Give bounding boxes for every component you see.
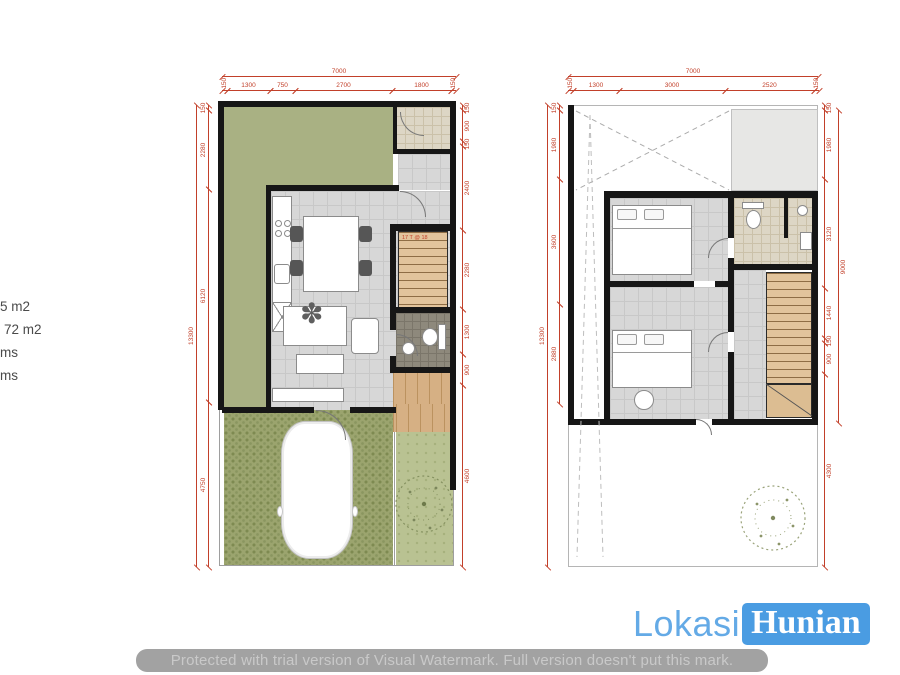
stove-burner xyxy=(275,220,282,227)
wall xyxy=(450,101,456,490)
dining-chair xyxy=(290,260,303,276)
dim-floor1-top-total: 7000 xyxy=(222,76,456,77)
dim-segment: 1980 xyxy=(824,110,825,179)
logo-badge-hunian: Hunian xyxy=(742,603,870,645)
dim-segment: 1300 xyxy=(462,309,463,354)
fence-line xyxy=(219,410,220,566)
dim-segment: 150 xyxy=(451,90,456,91)
floor-plan-image: 5 m2 72 m2 ms ms ✽ 17 T @ 18 xyxy=(0,0,900,675)
wall xyxy=(218,101,224,410)
dim-segment: 4600 xyxy=(462,385,463,567)
tv-console xyxy=(272,388,344,402)
dim-segment: 750 xyxy=(270,90,295,91)
floor1-stairs xyxy=(398,231,448,311)
dim-segment: 2400 xyxy=(462,146,463,230)
info-line-building-area: 72 m2 xyxy=(0,318,42,341)
tree-icon xyxy=(390,458,458,550)
dining-chair xyxy=(290,226,303,242)
dim-segment: 1800 xyxy=(392,90,451,91)
dim-segment: 4300 xyxy=(824,374,825,567)
wall xyxy=(390,231,396,330)
wall xyxy=(266,185,271,412)
wall xyxy=(390,224,450,231)
dim-floor2-left-total: 13300 xyxy=(547,105,548,567)
wall xyxy=(218,101,456,107)
dining-chair xyxy=(359,226,372,242)
fence-line xyxy=(394,432,395,565)
dim-segment: 4750 xyxy=(208,402,209,567)
kitchen-sink xyxy=(274,264,290,284)
dim-segment: 3000 xyxy=(619,90,725,91)
info-line-bedrooms: ms xyxy=(0,341,42,364)
dim-floor2-top-total: 7000 xyxy=(568,76,818,77)
wall xyxy=(396,307,456,313)
info-line-bathrooms: ms xyxy=(0,364,42,387)
wall xyxy=(390,367,456,373)
wall xyxy=(266,185,399,191)
toilet-bowl xyxy=(422,328,438,346)
dim-segment: 150 xyxy=(814,90,819,91)
floor1-side-garden xyxy=(224,107,266,410)
wall xyxy=(393,149,456,154)
car-mirror xyxy=(277,506,283,517)
stove-burner xyxy=(275,230,282,237)
floor1-foyer xyxy=(398,154,450,190)
car-mirror xyxy=(352,506,358,517)
wall xyxy=(222,407,314,413)
dim-segment: 3120 xyxy=(824,179,825,288)
coffee-table xyxy=(296,354,344,374)
dim-segment: 1300 xyxy=(573,90,619,91)
dim-segment: 2880 xyxy=(559,304,560,404)
lokasihunian-logo: Lokasi Hunian xyxy=(633,603,870,645)
wall xyxy=(350,407,396,413)
info-line-land-area: 5 m2 xyxy=(0,295,42,318)
dim-segment: 3600 xyxy=(559,179,560,304)
dim-segment: 1980 xyxy=(559,110,560,179)
dining-chair xyxy=(359,260,372,276)
toilet-tank xyxy=(438,324,446,350)
wall xyxy=(393,107,397,153)
dim-segment: 900 xyxy=(462,110,463,141)
dim-segment: 900 xyxy=(462,354,463,385)
fence-line xyxy=(453,490,454,566)
dim-segment: 6120 xyxy=(208,189,209,402)
fence-line xyxy=(219,565,454,566)
trial-watermark-bar: Protected with trial version of Visual W… xyxy=(136,649,768,672)
dim-segment: 2520 xyxy=(725,90,814,91)
plant-icon: ✽ xyxy=(300,300,323,328)
dim-floor2-right-total: 9000 xyxy=(838,110,839,423)
car xyxy=(281,421,353,559)
dim-segment: 2280 xyxy=(462,230,463,309)
stair-annotation: 17 T @ 18 xyxy=(402,235,428,241)
dining-table xyxy=(303,216,359,292)
floor1-deck-strip xyxy=(396,404,453,432)
dim-segment: 1440 xyxy=(824,288,825,338)
dim-floor1-left-total: 13300 xyxy=(196,105,197,567)
dim-segment: 2700 xyxy=(295,90,392,91)
dim-segment: 2280 xyxy=(208,110,209,189)
dim-segment: 1300 xyxy=(227,90,270,91)
logo-text-lokasi: Lokasi xyxy=(633,603,740,645)
tree-icon xyxy=(733,468,813,568)
armchair xyxy=(351,318,379,354)
property-info-panel: 5 m2 72 m2 ms ms xyxy=(0,295,42,387)
dim-segment: 900 xyxy=(824,343,825,374)
